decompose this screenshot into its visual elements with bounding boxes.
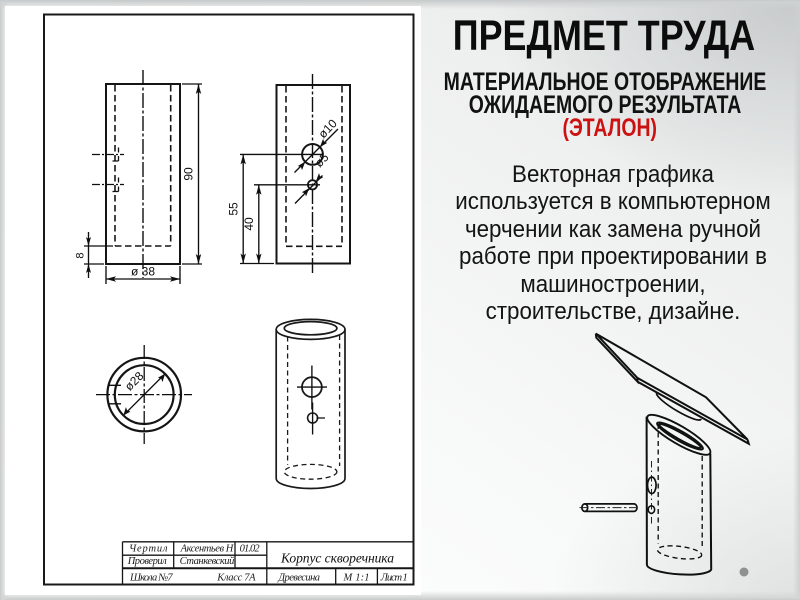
svg-text:Древесина: Древесина <box>277 573 320 584</box>
svg-text:Школа №7: Школа №7 <box>129 573 173 584</box>
svg-text:Чертил: Чертил <box>129 544 168 555</box>
svg-text:8: 8 <box>75 252 87 258</box>
svg-text:55: 55 <box>227 202 241 216</box>
svg-text:ø 38: ø 38 <box>131 265 155 279</box>
svg-text:М 1:1: М 1:1 <box>343 573 370 584</box>
svg-text:Корпус скворечника: Корпус скворечника <box>280 551 394 566</box>
svg-text:Класс 7А: Класс 7А <box>216 573 256 584</box>
svg-text:Аксентьев Н: Аксентьев Н <box>180 544 235 555</box>
svg-text:Проверил: Проверил <box>127 556 167 567</box>
svg-text:Лист 1: Лист 1 <box>380 573 408 584</box>
svg-text:40: 40 <box>242 217 256 231</box>
svg-text:01.02: 01.02 <box>240 544 261 555</box>
svg-text:Станкевский: Станкевский <box>180 556 235 567</box>
svg-text:90: 90 <box>182 167 196 181</box>
svg-text:ø10: ø10 <box>315 116 340 141</box>
